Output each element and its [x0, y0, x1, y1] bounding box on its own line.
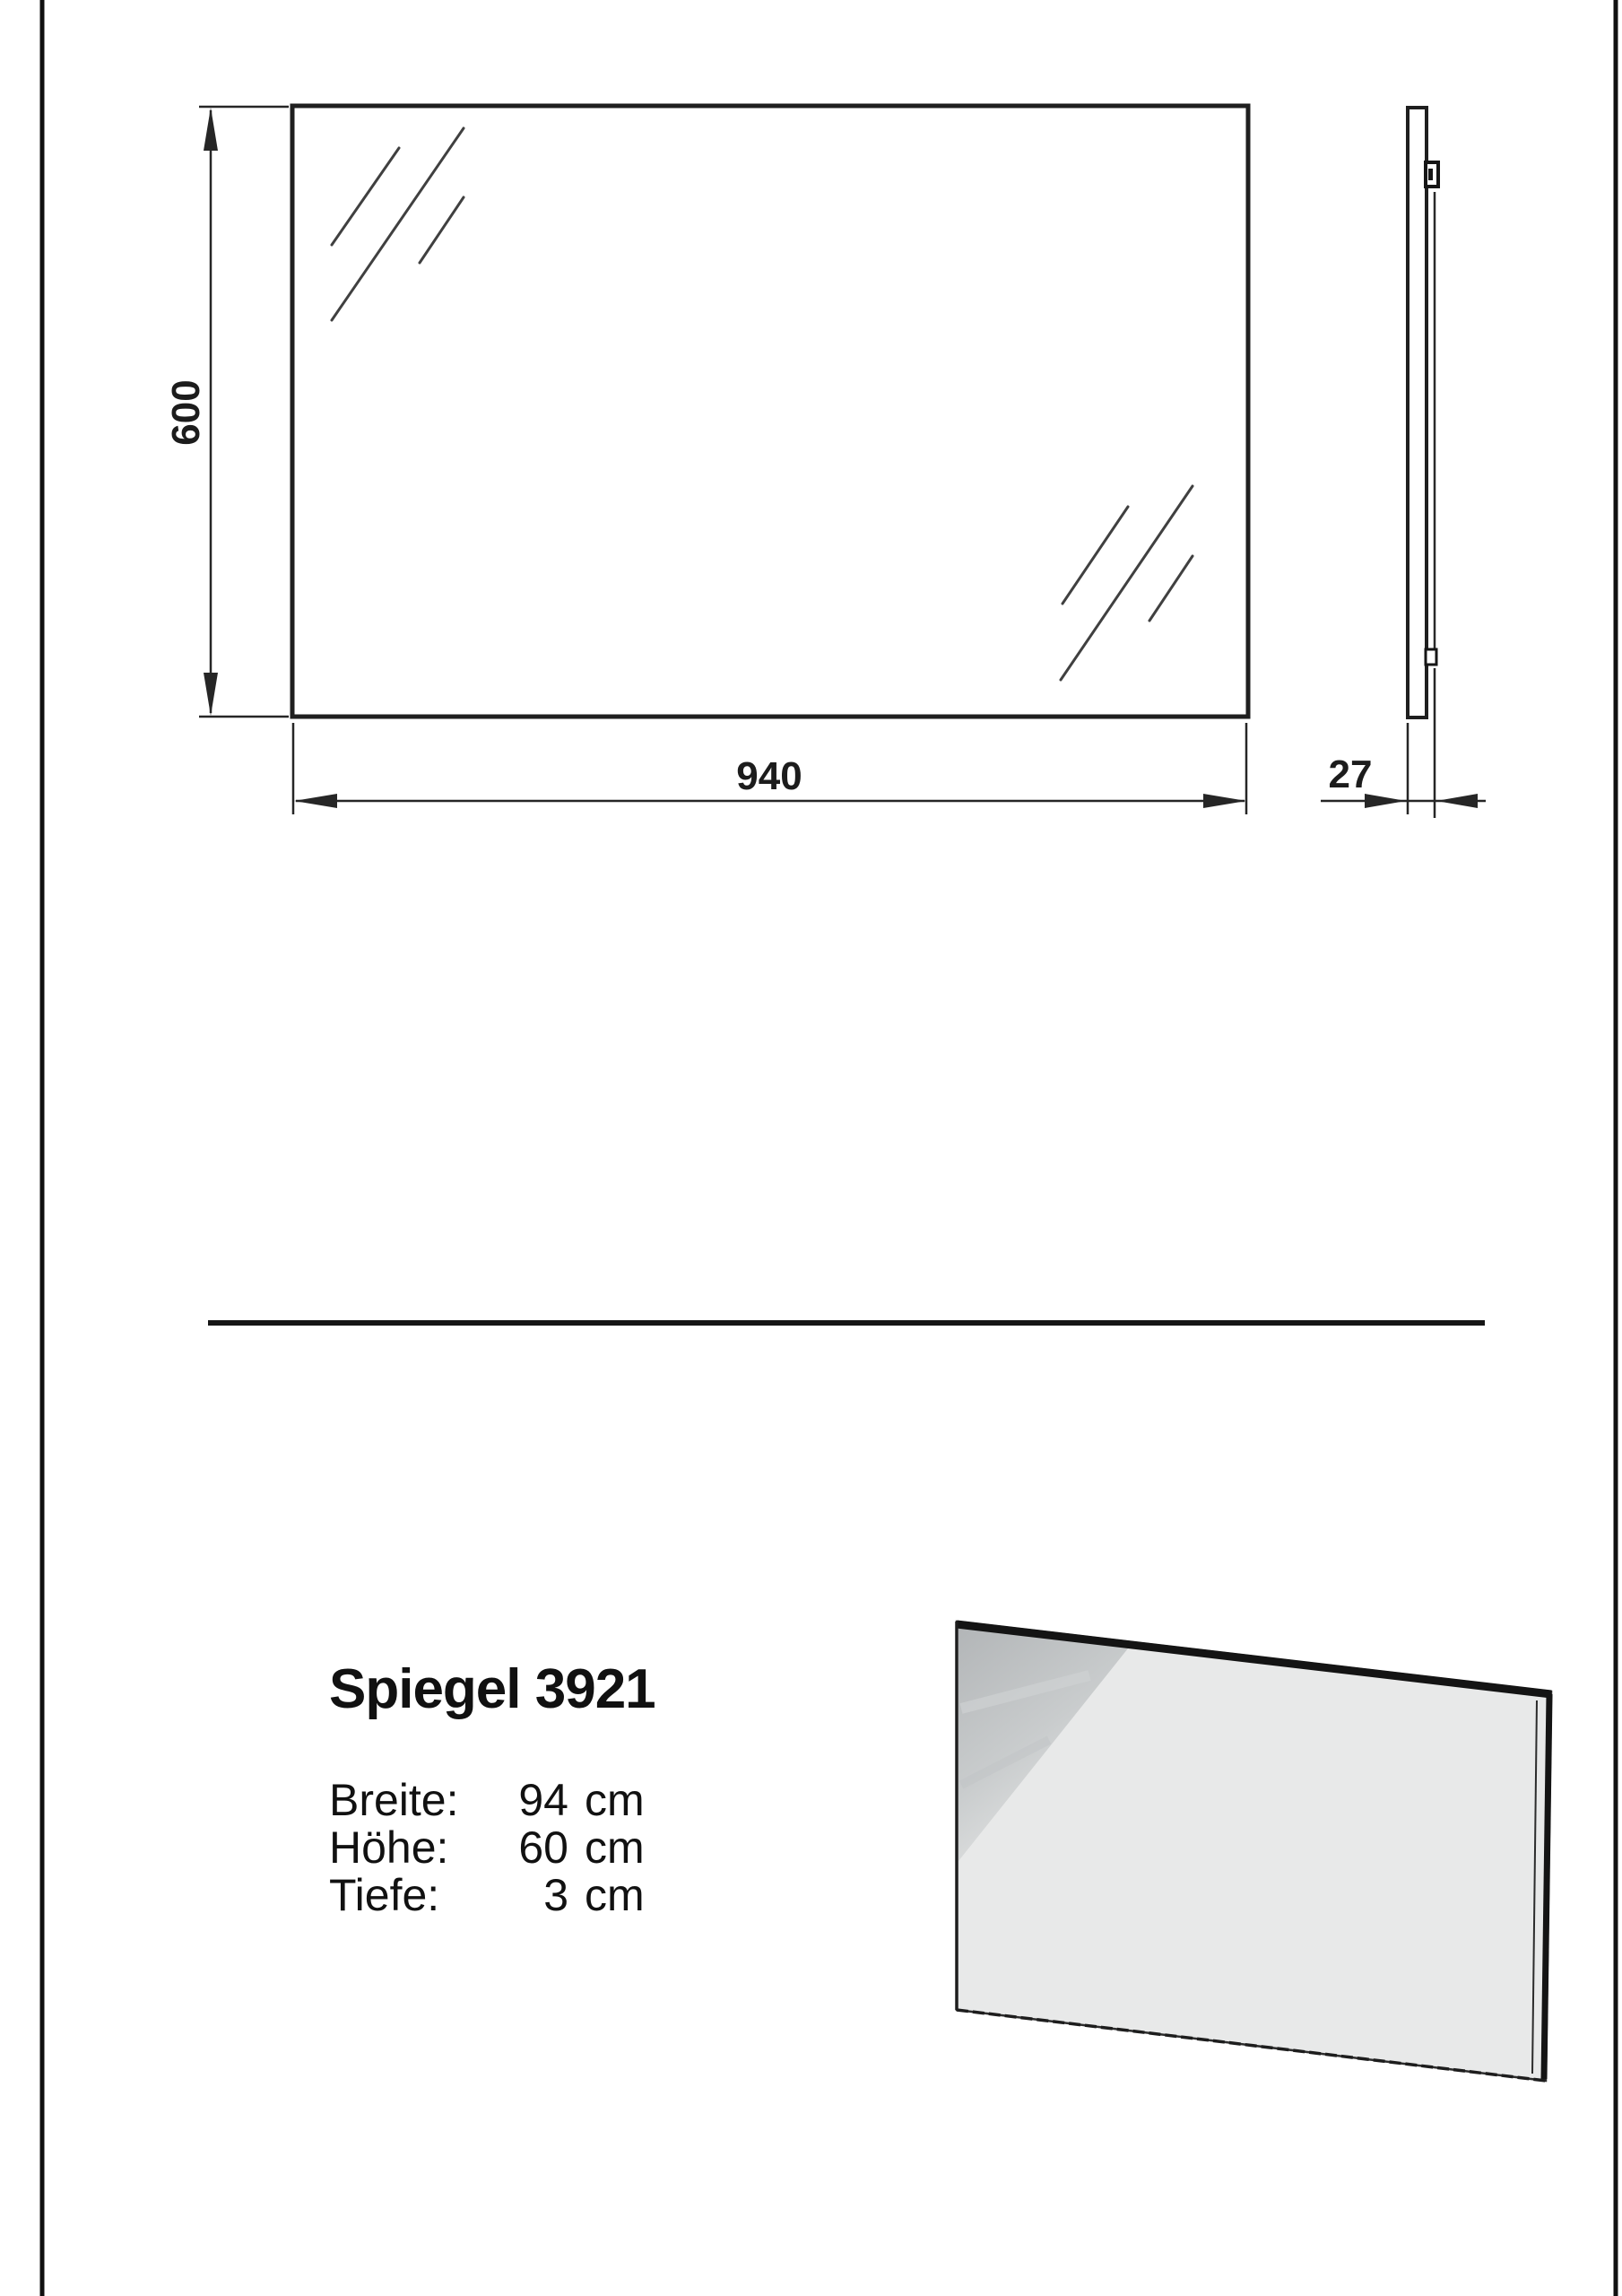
spec-unit: cm — [585, 1777, 645, 1824]
mirror-side-view — [1408, 108, 1438, 717]
mounting-bracket-bottom — [1426, 649, 1436, 665]
spec-row: Tiefe: 3 cm — [329, 1872, 655, 1919]
spec-label: Höhe: — [329, 1824, 474, 1872]
spec-table: Breite: 94 cm Höhe: 60 cm Tiefe: 3 cm — [329, 1777, 655, 1919]
spec-label: Tiefe: — [329, 1872, 474, 1919]
arrowhead-left — [294, 794, 337, 808]
arrowhead-down — [204, 673, 218, 716]
mounting-bracket-top-slot — [1428, 169, 1433, 180]
mirror-front-view — [292, 106, 1248, 717]
width-dimension: 940 — [293, 723, 1246, 814]
side-view-panel — [1408, 108, 1427, 717]
spec-label: Breite: — [329, 1777, 474, 1824]
technical-drawing: 600 940 27 — [0, 0, 1622, 2296]
arrowhead-left — [1436, 794, 1478, 808]
front-view-outline — [292, 106, 1248, 717]
spec-unit: cm — [585, 1872, 645, 1919]
spec-value: 94 — [474, 1777, 568, 1824]
product-info: Spiegel 3921 Breite: 94 cm Höhe: 60 cm T… — [329, 1660, 655, 1919]
arrowhead-up — [204, 108, 218, 151]
spec-row: Breite: 94 cm — [329, 1777, 655, 1824]
catalog-page: 600 940 27 — [0, 0, 1622, 2296]
spec-value: 60 — [474, 1824, 568, 1872]
spec-value: 3 — [474, 1872, 568, 1919]
spec-unit: cm — [585, 1824, 645, 1872]
height-dimension-label: 600 — [164, 379, 208, 445]
product-title: Spiegel 3921 — [329, 1660, 655, 1719]
height-dimension: 600 — [164, 107, 289, 717]
mirror-3d-render — [957, 1622, 1551, 2081]
width-dimension-label: 940 — [736, 754, 802, 798]
depth-dimension: 27 — [1321, 668, 1486, 818]
arrowhead-right — [1203, 794, 1246, 808]
spec-row: Höhe: 60 cm — [329, 1824, 655, 1872]
depth-dimension-label: 27 — [1329, 752, 1373, 796]
